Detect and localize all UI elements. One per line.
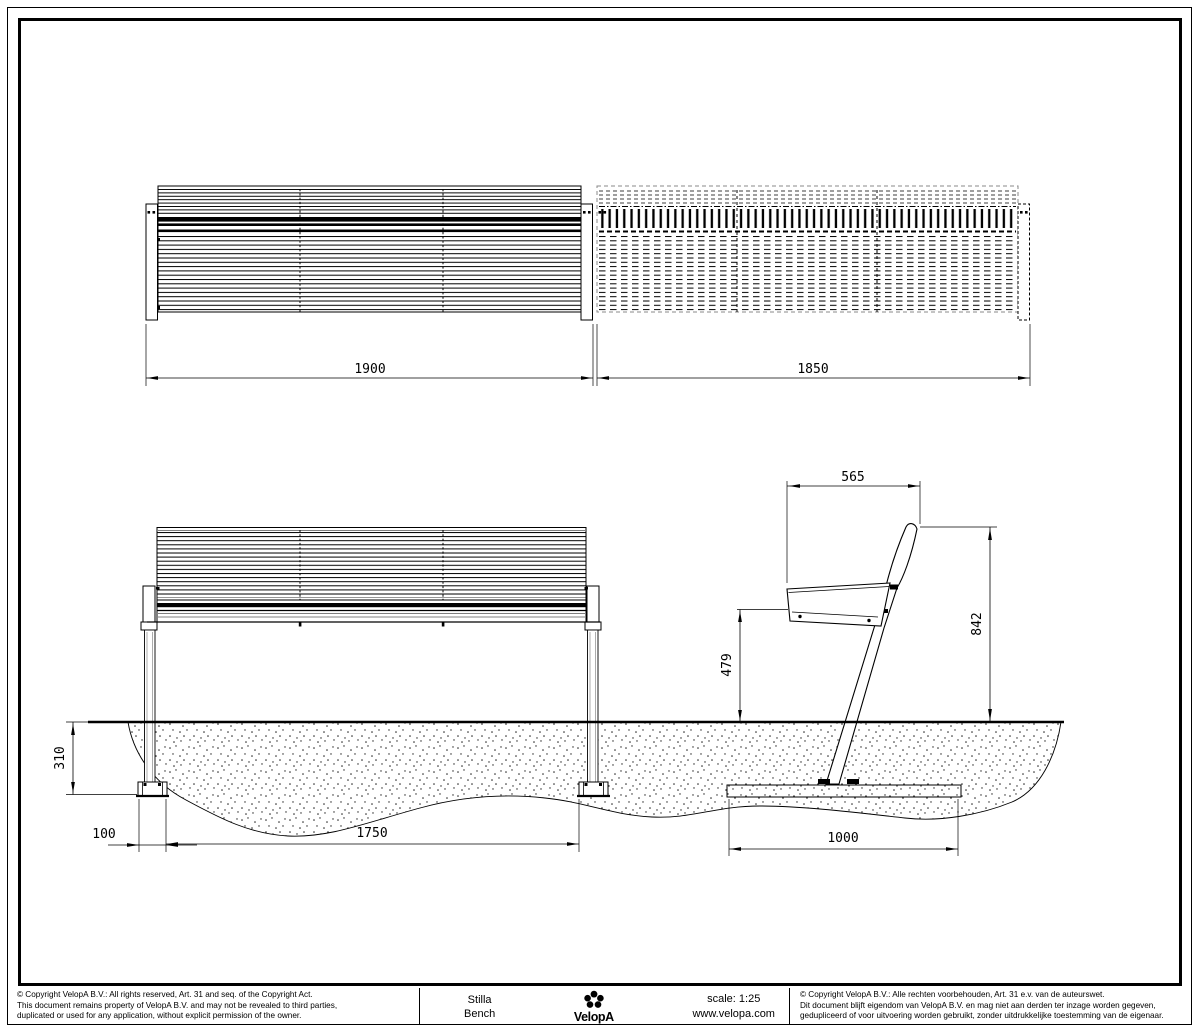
copyright-en-line1: © Copyright VelopA B.V.: All rights rese…: [17, 990, 419, 1001]
title-center-cell: Stilla Bench VelopA scale: 1:25 www.velo…: [420, 988, 790, 1025]
copyright-en-line3: duplicated or used for any application, …: [17, 1011, 419, 1022]
title-block: © Copyright VelopA B.V.: All rights rese…: [7, 988, 1193, 1025]
product-name: Stilla: [464, 993, 495, 1007]
copyright-nl-line2: Dit document blijft eigendom van VelopA …: [800, 1001, 1193, 1012]
copyright-nl-line3: gedupliceerd of voor uitvoering worden g…: [800, 1011, 1193, 1022]
scale-label: scale: 1:25: [692, 992, 775, 1007]
brand-name: VelopA: [574, 1012, 614, 1023]
copyright-en-line2: This document remains property of VelopA…: [17, 1001, 419, 1012]
drawing-sheet: 1900 1850: [0, 0, 1200, 1033]
copyright-dutch: © Copyright VelopA B.V.: Alle rechten vo…: [790, 988, 1193, 1025]
copyright-nl-line1: © Copyright VelopA B.V.: Alle rechten vo…: [800, 990, 1193, 1001]
velopa-logo: VelopA: [574, 990, 614, 1023]
scale-block: scale: 1:25 www.velopa.com: [692, 992, 775, 1022]
copyright-english: © Copyright VelopA B.V.: All rights rese…: [7, 988, 420, 1025]
sheet-inner-border: [18, 18, 1182, 986]
velopa-flower-icon: [582, 990, 606, 1010]
product-type: Bench: [464, 1007, 495, 1021]
product-title: Stilla Bench: [464, 993, 495, 1021]
website-label: www.velopa.com: [692, 1007, 775, 1022]
